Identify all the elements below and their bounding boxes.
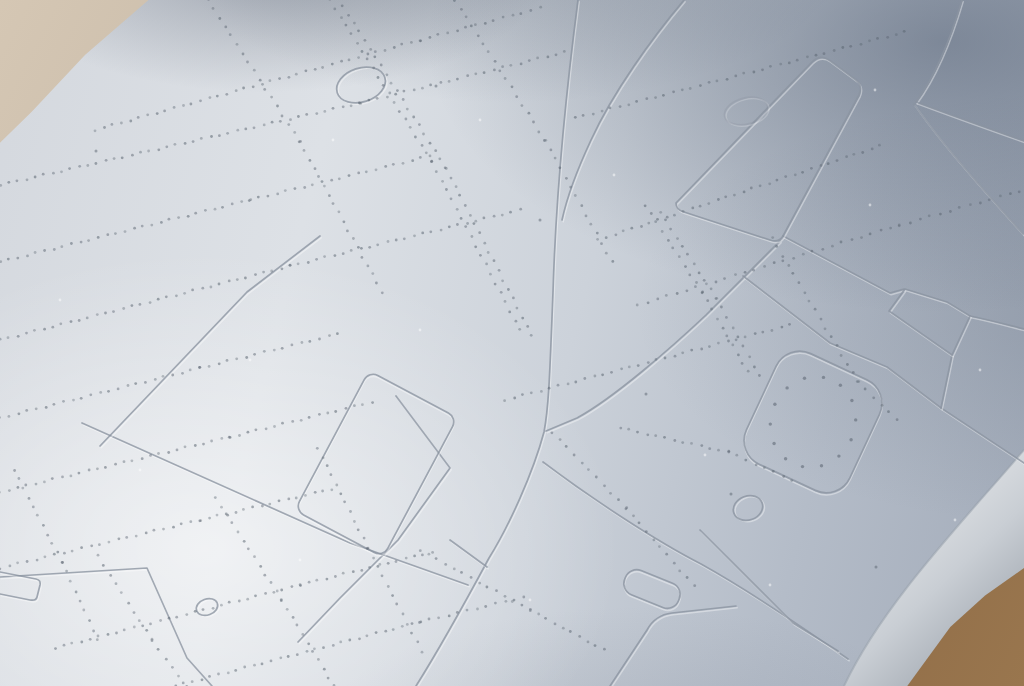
hatch-rivet-ring	[769, 376, 858, 469]
dust-specks	[59, 85, 982, 602]
panel-lines	[0, 0, 1024, 686]
embossed-shapes	[194, 57, 971, 686]
surface-detail	[0, 0, 1024, 686]
model-kit-part-photo	[0, 0, 1024, 686]
